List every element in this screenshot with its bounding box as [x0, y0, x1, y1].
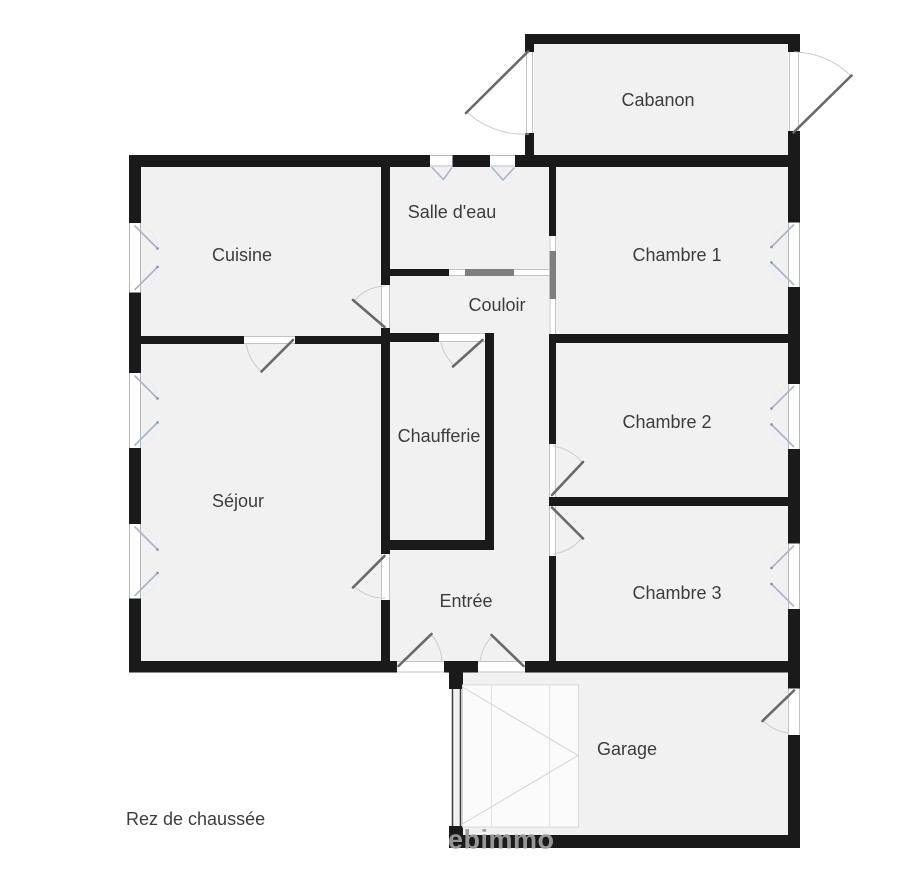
svg-text:Chambre 2: Chambre 2 [622, 412, 711, 432]
svg-text:ebimmo: ebimmo [448, 825, 555, 855]
svg-text:Cuisine: Cuisine [212, 245, 272, 265]
svg-text:Couloir: Couloir [468, 295, 525, 315]
svg-text:Entrée: Entrée [439, 591, 492, 611]
svg-text:Chambre 3: Chambre 3 [632, 583, 721, 603]
svg-text:Rez de chaussée: Rez de chaussée [126, 809, 265, 829]
svg-text:Cabanon: Cabanon [621, 90, 694, 110]
svg-text:Chaufferie: Chaufferie [398, 426, 481, 446]
svg-text:Séjour: Séjour [212, 491, 264, 511]
svg-text:Garage: Garage [597, 739, 657, 759]
svg-text:Salle d'eau: Salle d'eau [408, 202, 497, 222]
svg-text:Chambre 1: Chambre 1 [632, 245, 721, 265]
